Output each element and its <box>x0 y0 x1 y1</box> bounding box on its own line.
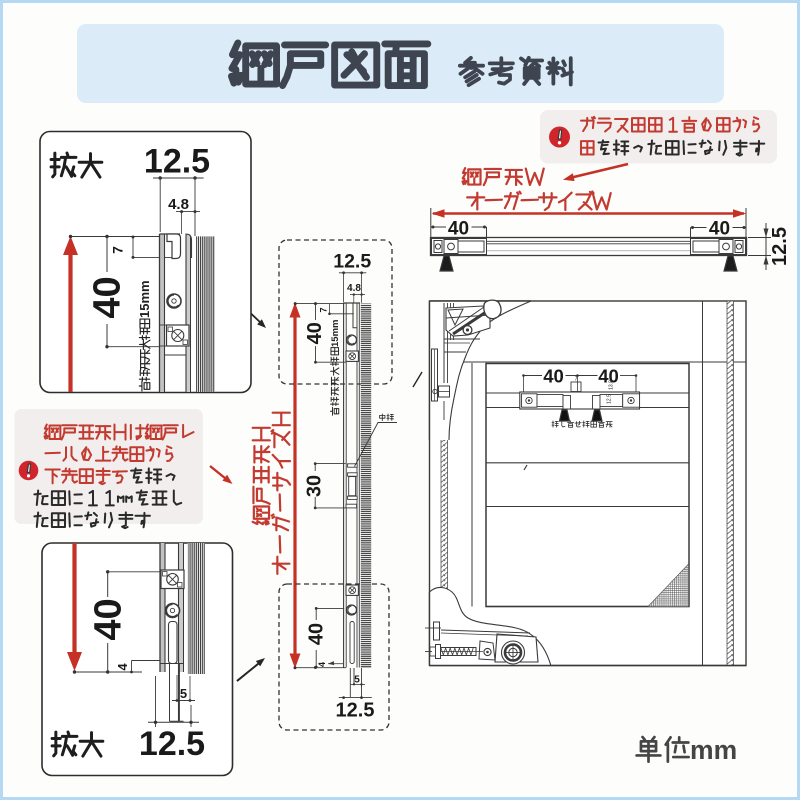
svg-text:12.5: 12.5 <box>769 227 791 266</box>
svg-text:12.5: 12.5 <box>139 725 205 763</box>
svg-text:4: 4 <box>115 663 130 671</box>
svg-text:4.8: 4.8 <box>347 283 361 294</box>
svg-text:40: 40 <box>543 366 564 387</box>
svg-text:40: 40 <box>306 623 328 645</box>
svg-text:7: 7 <box>575 377 578 383</box>
svg-text:4.8: 4.8 <box>168 196 189 213</box>
svg-text:15mm: 15mm <box>330 320 341 347</box>
svg-text:12.5: 12.5 <box>144 143 210 181</box>
svg-text:15mm: 15mm <box>137 280 152 318</box>
svg-text:40: 40 <box>87 276 129 318</box>
svg-text:40: 40 <box>448 219 469 240</box>
svg-text:40: 40 <box>88 598 130 640</box>
svg-text:40: 40 <box>709 219 730 240</box>
svg-text:4: 4 <box>317 662 327 667</box>
svg-text:mm: mm <box>690 735 737 765</box>
svg-text:12.5: 12.5 <box>333 250 371 272</box>
svg-text:30: 30 <box>304 475 326 497</box>
svg-text:40: 40 <box>304 322 326 344</box>
svg-text:7: 7 <box>110 246 126 254</box>
svg-text:7: 7 <box>319 307 329 312</box>
svg-text:13.8: 13.8 <box>608 380 614 390</box>
svg-text:5: 5 <box>354 675 360 686</box>
svg-text:5: 5 <box>180 686 187 701</box>
svg-text:12.5: 12.5 <box>606 394 612 404</box>
svg-text:12.5: 12.5 <box>336 700 375 722</box>
